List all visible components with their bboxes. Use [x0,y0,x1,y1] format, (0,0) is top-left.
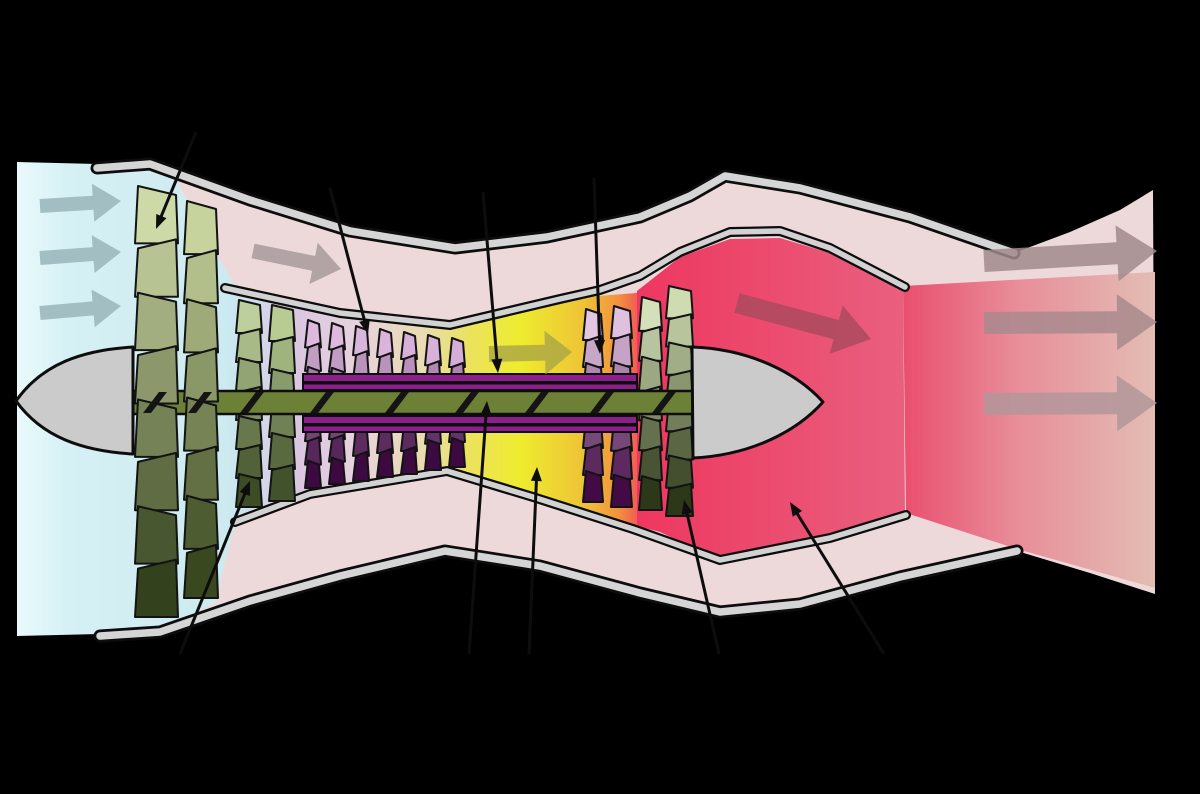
blade [135,293,178,350]
hp-shaft-midline-2 [303,423,637,427]
blade [329,458,345,484]
blade [135,506,178,563]
blade [611,475,632,507]
turbofan-engine-diagram [0,0,1200,794]
blade [135,346,178,403]
blade [269,433,295,469]
turbofan-diagram-canvas [0,0,1200,794]
blade [269,465,295,501]
blade [184,496,218,549]
blade [236,329,262,362]
blade [666,343,693,375]
blade [236,358,262,391]
blade [639,476,662,510]
blade [639,327,662,361]
blade [236,445,262,478]
blade [184,201,218,254]
hp-shaft-midline-1 [303,381,637,385]
blade [666,456,693,488]
blade [639,446,662,480]
blade [639,416,662,450]
blade [611,306,632,338]
blade [184,250,218,303]
blade [583,471,603,502]
blade [236,300,262,333]
blade [449,438,465,467]
blade [425,440,441,470]
blade [353,452,369,481]
blade [639,357,662,391]
blade [401,447,417,474]
blade [135,453,178,510]
blade [184,348,218,401]
blade [269,337,295,373]
blade [666,314,693,346]
blade [305,461,321,488]
blade [184,447,218,500]
fan-blades [135,186,218,617]
blade [666,286,693,318]
blade [184,299,218,352]
blade [135,239,178,296]
blade [377,449,393,477]
blade [135,400,178,457]
blade [236,416,262,449]
blade [666,427,693,459]
blade [135,560,178,617]
blade [639,297,662,331]
blade [269,305,295,341]
